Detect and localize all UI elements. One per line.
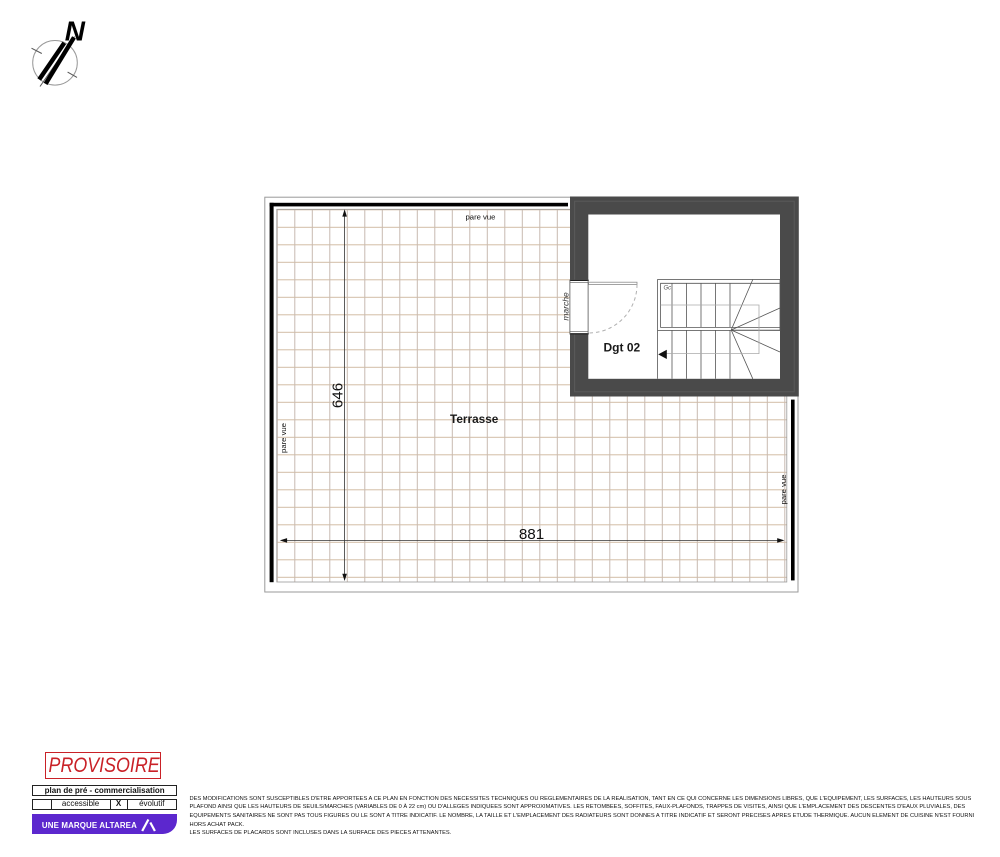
svg-text:N: N [65, 15, 86, 46]
svg-text:Gc: Gc [664, 285, 672, 291]
svg-text:pare vue: pare vue [779, 475, 788, 505]
svg-text:Dgt 02: Dgt 02 [604, 340, 641, 354]
svg-text:pare vue: pare vue [466, 213, 496, 222]
svg-text:881: 881 [519, 526, 544, 543]
svg-text:Terrasse: Terrasse [450, 412, 499, 426]
svg-text:marche: marche [560, 292, 570, 321]
svg-text:646: 646 [330, 383, 347, 408]
svg-text:pare vue: pare vue [279, 423, 288, 453]
